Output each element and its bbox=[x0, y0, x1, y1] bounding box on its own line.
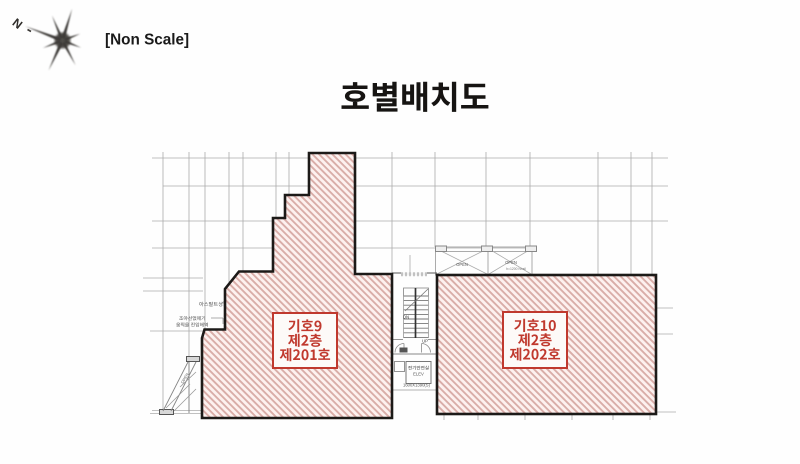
svg-text:h=1200 h/rail: h=1200 h/rail bbox=[506, 267, 526, 271]
svg-text:OPEN: OPEN bbox=[505, 260, 517, 265]
svg-text:1600X1390(S): 1600X1390(S) bbox=[403, 383, 431, 388]
svg-text:OPEN: OPEN bbox=[456, 262, 468, 267]
svg-text:UP: UP bbox=[422, 339, 428, 344]
svg-text:DN: DN bbox=[403, 315, 409, 320]
svg-text:ELEV: ELEV bbox=[413, 372, 424, 377]
svg-text:[Non Scale]: [Non Scale] bbox=[105, 32, 189, 49]
